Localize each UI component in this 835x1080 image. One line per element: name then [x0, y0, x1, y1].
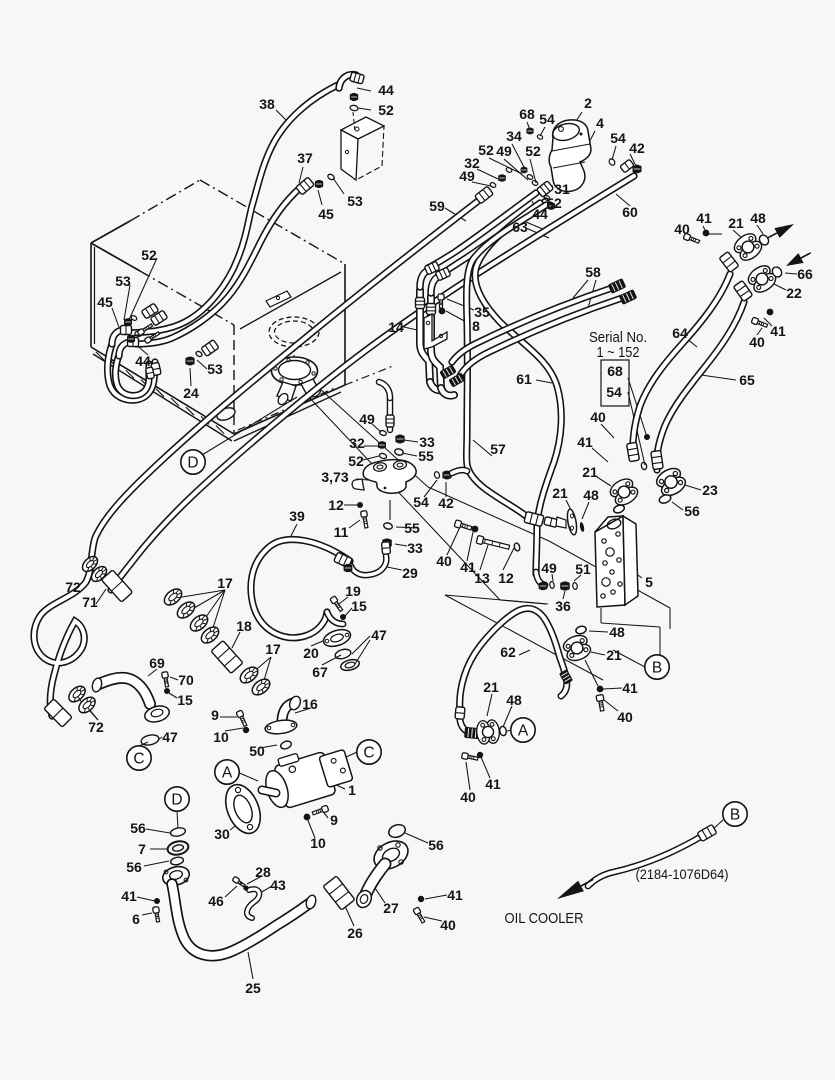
svg-text:52: 52 [378, 102, 394, 118]
svg-text:70: 70 [178, 672, 194, 688]
svg-text:58: 58 [585, 264, 601, 280]
svg-text:30: 30 [214, 826, 230, 842]
svg-text:71: 71 [82, 594, 98, 610]
svg-text:41: 41 [770, 323, 786, 339]
svg-text:40: 40 [749, 334, 765, 350]
svg-text:A: A [222, 765, 233, 782]
svg-text:8: 8 [472, 318, 480, 334]
svg-text:42: 42 [438, 495, 454, 511]
svg-text:22: 22 [786, 285, 802, 301]
svg-text:14: 14 [388, 319, 404, 335]
svg-text:60: 60 [622, 204, 638, 220]
svg-text:11: 11 [334, 524, 349, 540]
svg-text:51: 51 [575, 561, 591, 577]
svg-text:54: 54 [606, 384, 622, 400]
svg-text:24: 24 [183, 385, 199, 401]
svg-text:28: 28 [255, 864, 271, 880]
svg-text:34: 34 [506, 128, 522, 144]
svg-text:36: 36 [555, 598, 571, 614]
svg-text:12: 12 [328, 497, 344, 513]
svg-text:64: 64 [672, 325, 688, 341]
svg-text:55: 55 [418, 448, 434, 464]
svg-text:59: 59 [429, 198, 445, 214]
svg-text:39: 39 [289, 508, 305, 524]
svg-text:68: 68 [519, 106, 535, 122]
svg-text:52: 52 [141, 247, 157, 263]
svg-text:53: 53 [115, 273, 131, 289]
svg-text:48: 48 [583, 487, 599, 503]
svg-text:52: 52 [478, 142, 494, 158]
svg-text:48: 48 [609, 624, 625, 640]
svg-text:OIL COOLER: OIL COOLER [505, 911, 584, 927]
svg-text:56: 56 [684, 503, 700, 519]
svg-text:10: 10 [213, 729, 229, 745]
svg-text:41: 41 [577, 434, 593, 450]
svg-text:40: 40 [436, 553, 452, 569]
svg-text:C: C [133, 751, 144, 768]
svg-text:40: 40 [460, 789, 476, 805]
svg-text:38: 38 [259, 96, 275, 112]
svg-text:16: 16 [302, 696, 318, 712]
svg-text:1 ~ 152: 1 ~ 152 [597, 344, 640, 361]
svg-text:68: 68 [607, 363, 623, 379]
svg-text:56: 56 [126, 859, 142, 875]
svg-text:13: 13 [474, 570, 490, 586]
svg-text:21: 21 [582, 464, 598, 480]
svg-text:41: 41 [696, 210, 712, 226]
svg-text:29: 29 [402, 565, 418, 581]
svg-text:15: 15 [351, 598, 367, 614]
svg-text:49: 49 [496, 143, 512, 159]
svg-text:44: 44 [135, 353, 151, 369]
svg-text:48: 48 [750, 210, 766, 226]
svg-text:72: 72 [88, 719, 104, 735]
svg-text:25: 25 [245, 980, 261, 996]
svg-text:7: 7 [138, 841, 146, 857]
svg-text:43: 43 [270, 877, 286, 893]
svg-text:27: 27 [383, 900, 399, 916]
svg-text:9: 9 [330, 812, 338, 828]
svg-text:53: 53 [347, 193, 363, 209]
svg-text:40: 40 [617, 709, 633, 725]
svg-text:19: 19 [345, 583, 361, 599]
svg-text:41: 41 [622, 680, 638, 696]
svg-text:46: 46 [208, 893, 224, 909]
svg-text:20: 20 [303, 645, 319, 661]
svg-text:49: 49 [459, 168, 475, 184]
svg-text:21: 21 [552, 485, 568, 501]
svg-text:61: 61 [516, 371, 532, 387]
svg-text:49: 49 [359, 411, 375, 427]
svg-text:66: 66 [797, 266, 813, 282]
svg-text:55: 55 [404, 520, 420, 536]
svg-text:33: 33 [407, 540, 423, 556]
svg-text:54: 54 [413, 494, 429, 510]
svg-text:40: 40 [440, 917, 456, 933]
svg-text:44: 44 [532, 206, 548, 222]
svg-text:47: 47 [371, 627, 387, 643]
svg-text:21: 21 [483, 679, 499, 695]
svg-text:69: 69 [149, 655, 165, 671]
svg-text:37: 37 [297, 150, 313, 166]
svg-text:57: 57 [490, 441, 506, 457]
svg-text:A: A [518, 723, 529, 740]
svg-text:63: 63 [512, 219, 528, 235]
svg-text:10: 10 [310, 835, 326, 851]
svg-text:53: 53 [207, 361, 223, 377]
svg-text:2: 2 [584, 95, 592, 111]
svg-text:(2184-1076D64): (2184-1076D64) [636, 867, 729, 882]
svg-text:45: 45 [318, 206, 334, 222]
svg-text:17: 17 [265, 641, 281, 657]
svg-text:26: 26 [347, 925, 363, 941]
svg-text:42: 42 [629, 140, 645, 156]
svg-text:49: 49 [541, 560, 557, 576]
svg-text:41: 41 [447, 887, 463, 903]
svg-text:D: D [187, 455, 198, 472]
svg-text:4: 4 [596, 115, 604, 131]
svg-text:C: C [363, 745, 374, 762]
svg-text:56: 56 [428, 837, 444, 853]
svg-text:40: 40 [674, 221, 690, 237]
svg-text:50: 50 [249, 743, 265, 759]
svg-text:54: 54 [610, 130, 626, 146]
svg-text:B: B [652, 660, 662, 677]
svg-text:65: 65 [739, 372, 755, 388]
svg-text:54: 54 [539, 111, 555, 127]
svg-text:45: 45 [97, 294, 113, 310]
svg-text:44: 44 [378, 82, 394, 98]
svg-text:67: 67 [312, 664, 328, 680]
svg-text:52: 52 [525, 143, 541, 159]
svg-text:18: 18 [236, 618, 252, 634]
svg-text:41: 41 [121, 888, 137, 904]
svg-text:12: 12 [498, 570, 514, 586]
svg-text:52: 52 [546, 195, 562, 211]
svg-text:21: 21 [728, 215, 744, 231]
svg-text:62: 62 [500, 644, 516, 660]
svg-text:32: 32 [349, 435, 365, 451]
svg-text:52: 52 [348, 453, 364, 469]
svg-text:6: 6 [132, 911, 140, 927]
svg-text:40: 40 [590, 409, 606, 425]
svg-text:21: 21 [606, 647, 622, 663]
svg-text:17: 17 [217, 575, 233, 591]
svg-text:5: 5 [645, 574, 653, 590]
svg-text:D: D [171, 792, 182, 809]
svg-text:48: 48 [506, 692, 522, 708]
svg-text:47: 47 [162, 729, 178, 745]
svg-text:1: 1 [348, 782, 356, 798]
svg-text:15: 15 [177, 692, 193, 708]
svg-text:3,73: 3,73 [321, 469, 348, 485]
svg-text:9: 9 [211, 707, 219, 723]
svg-text:23: 23 [702, 482, 718, 498]
svg-text:B: B [730, 807, 740, 824]
svg-text:72: 72 [65, 579, 81, 595]
svg-text:56: 56 [130, 820, 146, 836]
svg-text:41: 41 [485, 776, 501, 792]
